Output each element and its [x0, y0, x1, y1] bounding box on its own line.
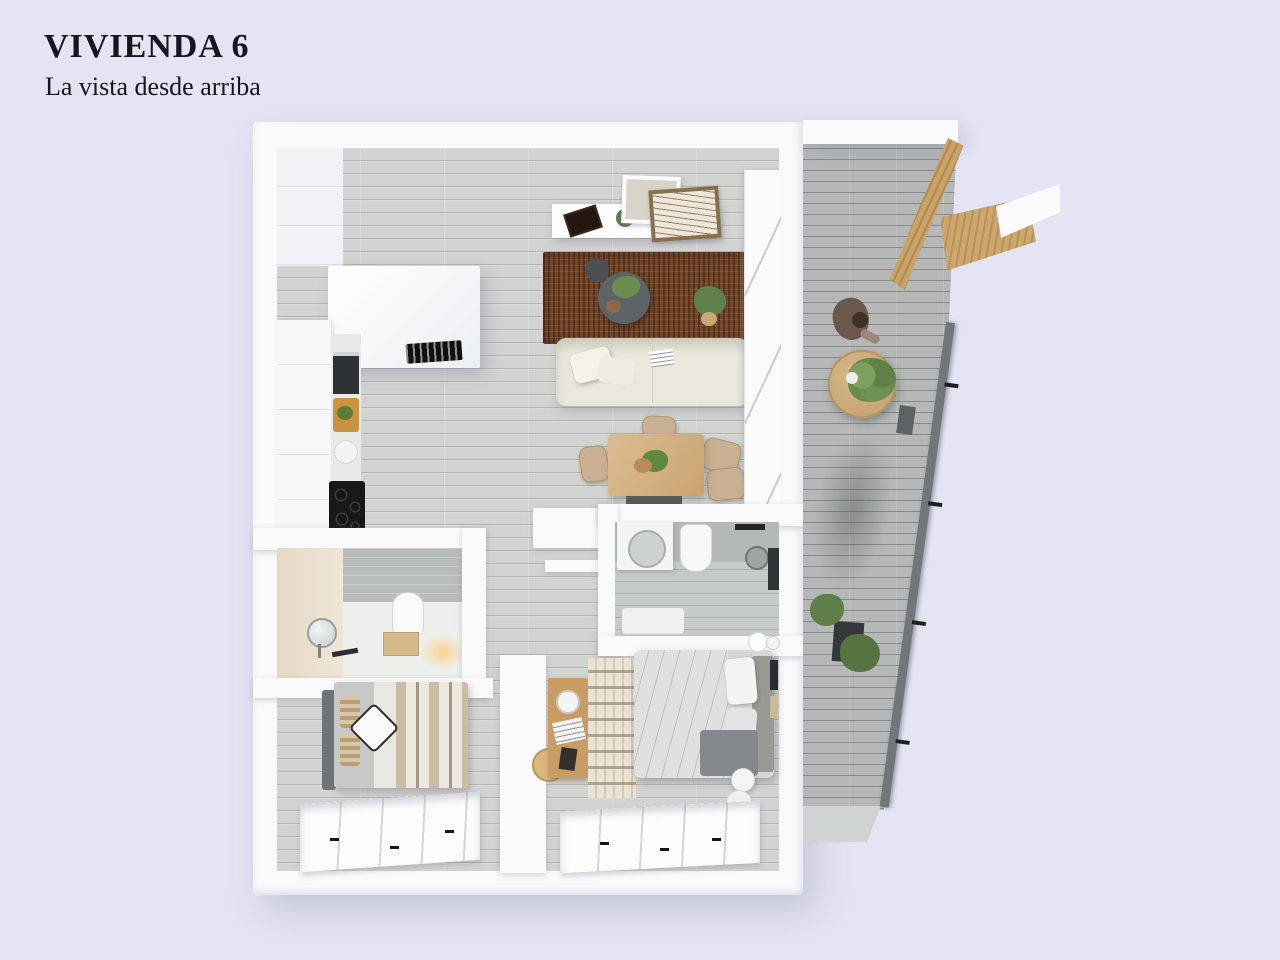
wardrobe-handle [600, 842, 609, 845]
railing-bracket [912, 620, 926, 626]
bedroom2-boho-rug [588, 658, 636, 798]
living-room-wardrobe [744, 170, 781, 520]
bedroom2-wardrobe-doors [560, 801, 760, 873]
bathroom1-mirror-stand [318, 644, 321, 658]
kitchen-oven [333, 352, 359, 394]
wardrobe-handle [445, 830, 454, 833]
dining-chair [578, 444, 611, 484]
page-title: VIVIENDA 6 [44, 28, 250, 66]
kitchen-greens [337, 406, 353, 420]
bathroom1-mirror [307, 618, 337, 648]
sofa-magazine [649, 348, 675, 367]
bathroom1-toilet [392, 592, 424, 636]
bathroom2-sink [628, 530, 666, 568]
page-subtitle: La vista desde arriba [45, 72, 261, 102]
balcony-plant [840, 634, 880, 672]
kitchen-bowl [334, 440, 358, 464]
bedroom1-pillow [340, 734, 360, 766]
balcony-floor-apron [803, 806, 887, 848]
bedroom2-pillow [724, 657, 758, 705]
person-head [852, 312, 868, 328]
bathroom1-vanity-light [420, 634, 466, 670]
bedroom2-desk-lamp [556, 690, 580, 714]
bathroom1-beige-wall [277, 548, 343, 678]
railing-bracket [928, 501, 942, 507]
bathroom2-shower-head [745, 546, 769, 570]
kitchen-vent-grille [405, 340, 462, 364]
floor-plan-render: VIVIENDA 6 La vista desde arriba [0, 0, 1280, 960]
wardrobe-handle [330, 838, 339, 841]
floor-plant-pot [701, 312, 717, 326]
bedroom1-striped-blanket [396, 682, 468, 788]
wardrobe-handle [660, 848, 669, 851]
kitchen-upper-cabinets [277, 148, 343, 266]
railing-bracket [895, 739, 909, 745]
bedroom2-wall-frame [770, 696, 778, 718]
coffee-table-bowl [606, 300, 621, 313]
bathroom1-vanity-drawer [383, 632, 419, 656]
balcony-plant-pot [846, 372, 858, 384]
bedroom2-bedside-lamp [766, 636, 780, 650]
picture-frame-wood [648, 186, 721, 243]
kitchen-tall-cabinet [277, 320, 331, 546]
wardrobe-handle [390, 846, 399, 849]
bathroom2-wall-niche [768, 548, 779, 590]
bedroom2-wall-frame [770, 660, 778, 690]
bathroom2-toilet [680, 524, 712, 572]
bathroom1-top-wall [253, 528, 485, 550]
wardrobe-handle [712, 838, 721, 841]
hall-partition-wall [533, 508, 605, 548]
bathroom2-shower-tray [622, 608, 684, 634]
balcony-top-wall [803, 120, 958, 144]
bathroom2-shower-arm [735, 524, 765, 530]
kitchen-cooktop [329, 481, 365, 535]
bedroom2-desk-notebook [559, 747, 578, 771]
bedroom2-bedside-table [748, 632, 768, 652]
dining-table-bowl [634, 458, 652, 473]
dining-chair [705, 466, 746, 502]
railing-bracket [944, 382, 958, 388]
bathroom1-right-wall [462, 528, 486, 696]
bedroom2-stool [731, 768, 755, 792]
